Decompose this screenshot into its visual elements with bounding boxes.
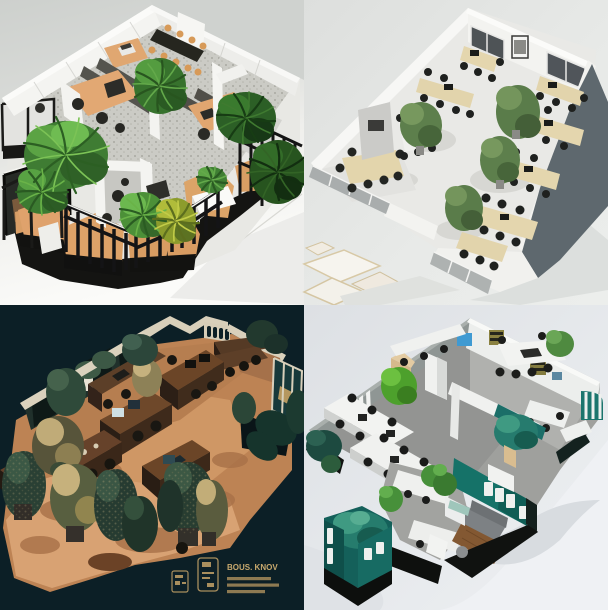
svg-text:BOUS. KNOV: BOUS. KNOV [227,563,278,572]
